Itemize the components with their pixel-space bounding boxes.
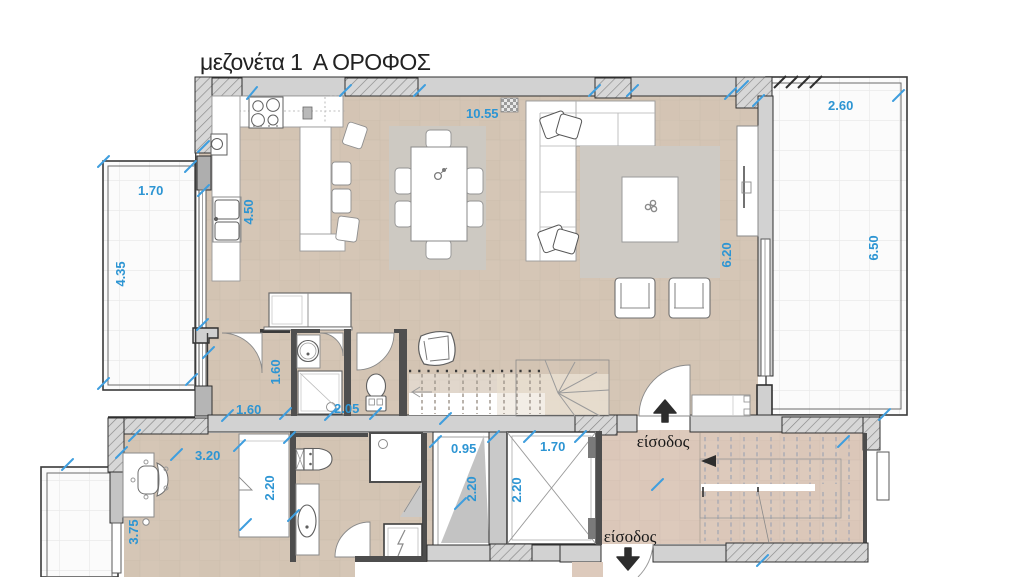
svg-text:2.20: 2.20	[509, 477, 524, 502]
svg-text:μεζονέτα 1 Α ΟΡΟΦΟΣ: μεζονέτα 1 Α ΟΡΟΦΟΣ	[200, 49, 431, 75]
svg-text:1.70: 1.70	[540, 439, 565, 454]
svg-text:0.95: 0.95	[451, 441, 476, 456]
svg-text:6.50: 6.50	[866, 235, 881, 260]
svg-text:2.05: 2.05	[334, 401, 359, 416]
svg-text:είσοδος: είσοδος	[637, 432, 690, 451]
svg-text:2.60: 2.60	[828, 98, 853, 113]
svg-text:είσοδος: είσοδος	[604, 527, 657, 546]
svg-text:1.60: 1.60	[236, 402, 261, 417]
svg-text:1.70: 1.70	[138, 183, 163, 198]
svg-text:10.55: 10.55	[466, 106, 499, 121]
svg-text:6.20: 6.20	[719, 242, 734, 267]
svg-text:3.75: 3.75	[126, 519, 141, 544]
svg-text:3.20: 3.20	[195, 448, 220, 463]
svg-text:1.60: 1.60	[268, 359, 283, 384]
svg-text:2.20: 2.20	[262, 475, 277, 500]
svg-text:4.35: 4.35	[113, 261, 128, 286]
svg-text:4.50: 4.50	[241, 199, 256, 224]
